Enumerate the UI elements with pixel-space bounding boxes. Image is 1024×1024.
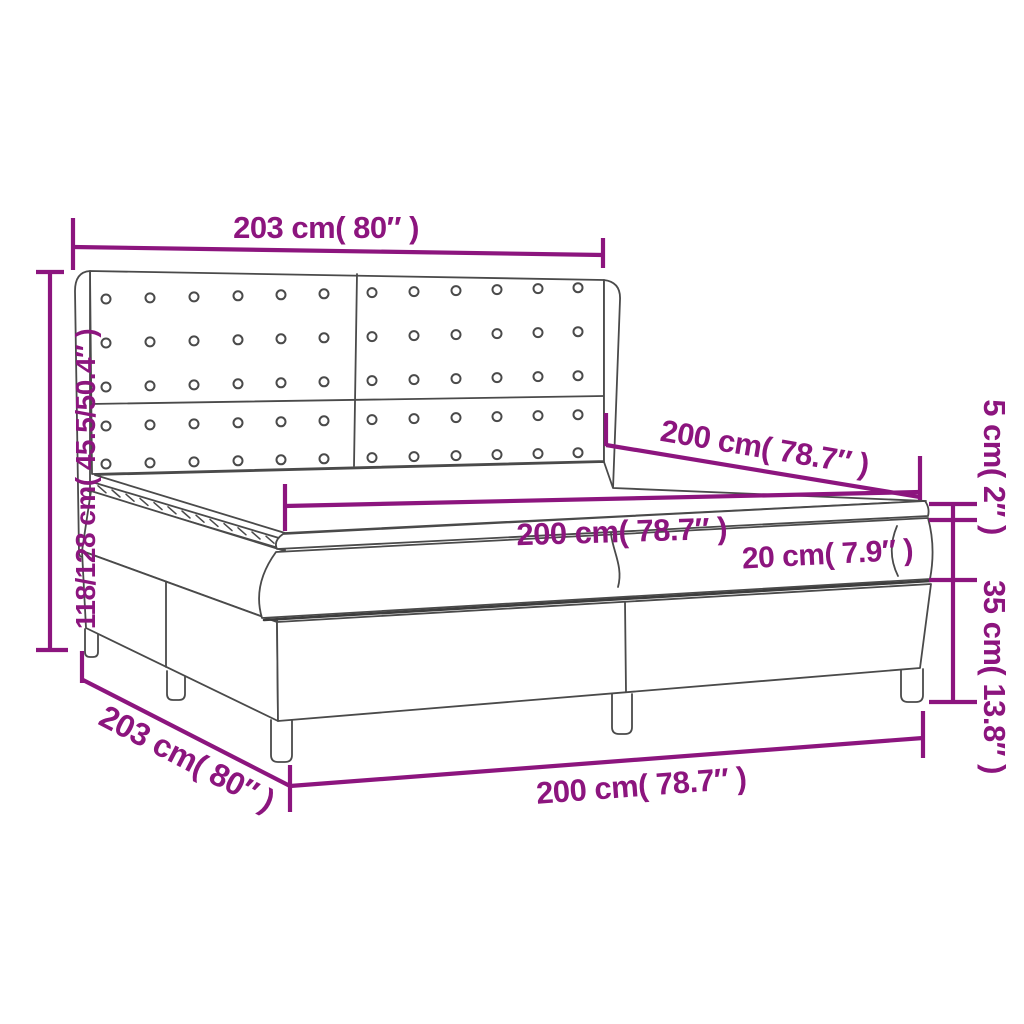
dim-bed-length-depth: 200 cm( 78.7″ ) xyxy=(606,413,920,500)
tufting-button xyxy=(146,337,155,346)
tufting-button xyxy=(102,383,111,392)
dim-label-mattress-length: 200 cm( 78.7″ ) xyxy=(516,511,728,553)
leg-front-mid xyxy=(612,694,632,734)
tufting-button xyxy=(277,334,286,343)
tufting-button xyxy=(320,333,329,342)
dim-right-heights: 5 cm( 2″ ) 35 cm( 13.8″ ) xyxy=(929,399,1012,774)
tufting-button xyxy=(190,380,199,389)
tufting-button xyxy=(452,413,461,422)
tufting-button xyxy=(277,455,286,464)
tufting-button xyxy=(493,285,502,294)
tufting-button xyxy=(574,410,583,419)
tufting-button xyxy=(146,458,155,467)
tufting-button xyxy=(534,328,543,337)
tufting-button xyxy=(452,374,461,383)
tufting-button xyxy=(410,414,419,423)
tufting-button xyxy=(410,375,419,384)
tufting-button xyxy=(493,329,502,338)
tufting-button xyxy=(320,289,329,298)
tufting-button xyxy=(146,293,155,302)
tufting-button xyxy=(410,331,419,340)
tufting-button xyxy=(320,416,329,425)
dim-label-headboard-width: 203 cm( 80″ ) xyxy=(233,210,419,245)
stitch-mark xyxy=(224,524,232,531)
stitch-mark xyxy=(210,519,218,526)
tufting-button xyxy=(277,290,286,299)
tufting-button xyxy=(190,457,199,466)
leg-front-left xyxy=(271,720,292,762)
tufting-button xyxy=(493,412,502,421)
tufting-button xyxy=(368,332,377,341)
tufting-button xyxy=(234,335,243,344)
stitch-mark xyxy=(154,503,162,510)
tufting-button xyxy=(190,336,199,345)
bed-illustration xyxy=(75,271,933,762)
stitch-mark xyxy=(252,532,260,539)
tufting-button xyxy=(234,379,243,388)
tufting-button xyxy=(146,381,155,390)
tufting-button xyxy=(534,449,543,458)
tufting-button xyxy=(277,378,286,387)
tufting-button xyxy=(277,417,286,426)
tufting-button xyxy=(234,291,243,300)
diagram-canvas: 203 cm( 80″ ) 118/128 cm( 45.5/50.4″ ) 2… xyxy=(0,0,1024,1024)
tufting-button xyxy=(368,288,377,297)
stitch-mark xyxy=(168,507,176,514)
stitch-mark xyxy=(182,511,190,518)
bed-dimension-diagram: 203 cm( 80″ ) 118/128 cm( 45.5/50.4″ ) 2… xyxy=(0,0,1024,1024)
stitch-mark xyxy=(238,528,246,535)
leg-front-right xyxy=(901,669,923,702)
tufting-button xyxy=(574,327,583,336)
tufting-button xyxy=(320,377,329,386)
tufting-button xyxy=(102,295,111,304)
tufting-button xyxy=(452,451,461,460)
stitch-mark xyxy=(140,498,148,505)
dim-label-total-height: 118/128 cm( 45.5/50.4″ ) xyxy=(70,329,101,629)
tufting-button xyxy=(574,448,583,457)
dim-headboard-width: 203 cm( 80″ ) xyxy=(73,210,603,270)
tufting-button xyxy=(102,422,111,431)
dim-label-topper-thickness: 5 cm( 2″ ) xyxy=(977,399,1012,535)
dim-line xyxy=(73,247,603,255)
tufting-button xyxy=(190,419,199,428)
tufting-button xyxy=(410,287,419,296)
tufting-button xyxy=(190,292,199,301)
tufting-button xyxy=(574,283,583,292)
tufting-button xyxy=(574,371,583,380)
tufting-button xyxy=(368,453,377,462)
tufting-button xyxy=(493,450,502,459)
dim-bed-length-bottom: 200 cm( 78.7″ ) xyxy=(290,711,923,811)
tufting-button xyxy=(320,454,329,463)
dim-label-bed-width-side: 203 cm( 80″ ) xyxy=(94,698,281,819)
headboard-panel xyxy=(90,271,604,474)
tufting-button xyxy=(534,411,543,420)
stitch-mark xyxy=(112,490,120,497)
tufting-button xyxy=(410,452,419,461)
tufting-button xyxy=(146,420,155,429)
stitch-mark xyxy=(266,536,274,543)
headboard-right-wing xyxy=(604,280,620,489)
tufting-button xyxy=(452,286,461,295)
dim-label-base-height: 35 cm( 13.8″ ) xyxy=(977,580,1012,774)
stitch-mark xyxy=(126,494,134,501)
stitch-mark xyxy=(196,515,204,522)
tufting-button xyxy=(102,339,111,348)
tufting-button xyxy=(368,376,377,385)
dim-label-bed-length-bottom: 200 cm( 78.7″ ) xyxy=(535,760,748,811)
tufting-button xyxy=(493,373,502,382)
tufting-button xyxy=(534,284,543,293)
tufting-button xyxy=(368,415,377,424)
tufting-button xyxy=(234,418,243,427)
tufting-button xyxy=(534,372,543,381)
tufting-button xyxy=(234,456,243,465)
tufting-button xyxy=(452,330,461,339)
tufting-button xyxy=(102,460,111,469)
base-front-seam xyxy=(625,602,626,692)
